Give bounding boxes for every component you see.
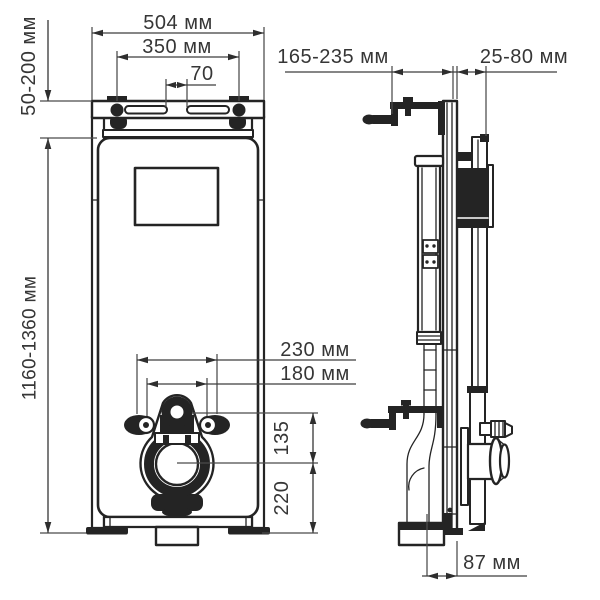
dim-label-top-adjust: 50-200 мм <box>18 16 40 116</box>
hanger-bolt-right <box>233 104 246 117</box>
outlet-box-side <box>399 523 444 545</box>
flush-access-block <box>458 168 488 228</box>
technical-drawing-sheet: 504 мм 350 мм 70 50-200 мм <box>0 0 600 600</box>
fitting-band <box>155 433 199 444</box>
frame-base <box>86 517 270 545</box>
wall-bracket-mid <box>361 400 445 430</box>
dim-label-fixing-inner: 180 мм <box>280 363 349 385</box>
floor-outlet-box <box>156 527 198 545</box>
front-view <box>86 96 270 545</box>
dim-label-drain-height: 220 <box>271 481 293 516</box>
foot-pad-left <box>86 527 128 535</box>
profile-connector <box>457 152 472 161</box>
dim-frame-height-1160-1360: 1160-1360 мм <box>20 138 87 533</box>
water-supply-stub <box>480 421 512 437</box>
cistern-cap <box>415 156 443 166</box>
dim-hanger-spacing-350: 350 мм <box>117 36 239 101</box>
dim-label-frame-height: 1160-1360 мм <box>20 276 41 400</box>
upper-port-hole <box>170 405 185 420</box>
dim-label-width: 504 мм <box>143 12 212 34</box>
crossbar-slot-left <box>125 106 167 114</box>
dim-label-drain-offset: 135 <box>271 421 293 456</box>
wall-bracket-top <box>363 97 446 135</box>
side-view <box>361 97 513 545</box>
top-crossbar <box>92 101 264 118</box>
installation-frame-drawing: 504 мм 350 мм 70 50-200 мм <box>0 0 600 600</box>
flush-plate-window <box>135 168 218 225</box>
dim-label-front-depth: 25-80 мм <box>480 46 568 68</box>
valve-block-upper <box>423 240 438 253</box>
dim-label-hanger-spacing: 350 мм <box>142 36 211 58</box>
valve-block-lower <box>423 255 438 268</box>
front-profile <box>443 101 457 530</box>
dim-label-wall-offset: 165-235 мм <box>277 46 388 68</box>
dim-drain-height-220: 220 <box>262 463 318 533</box>
dim-top-adjust-50-200: 50-200 мм <box>18 16 97 149</box>
rail-clamp <box>467 386 488 393</box>
cistern <box>415 156 443 344</box>
upper-cross-member <box>103 130 253 137</box>
dim-wall-offset-165-235: 165-235 мм 25-80 мм <box>277 46 568 136</box>
dim-label-outlet-offset: 87 мм <box>463 552 521 574</box>
dim-label-slot-gap: 70 <box>190 63 213 85</box>
rail-top-cap <box>480 134 489 142</box>
drain-opening <box>156 443 198 485</box>
crossbar-slot-right <box>187 106 229 114</box>
dim-label-fixing-outer: 230 мм <box>280 339 349 361</box>
front-plate <box>488 165 493 227</box>
hanger-bolt-left <box>111 104 124 117</box>
drain-elbow <box>407 344 436 523</box>
